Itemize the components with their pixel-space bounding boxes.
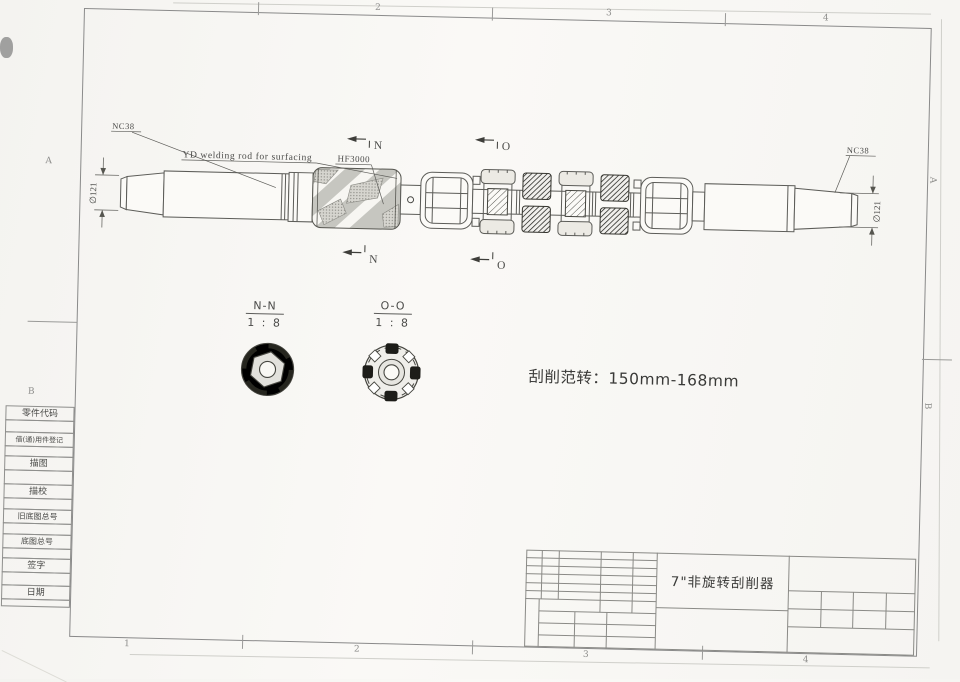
section-oo-title: O-O — [373, 299, 412, 315]
section-nn-caption: N-N 1 : 8 — [229, 299, 300, 331]
section-marker-o-bottom: O — [470, 252, 506, 272]
tool-right-section — [633, 177, 858, 238]
zone-tick — [725, 13, 726, 26]
zone-label-left: B — [28, 387, 35, 397]
drawing-sheet: 2 3 4 1 2 3 4 A B A B 零件代码 借(通)用件登记 描图 描… — [69, 8, 932, 657]
svg-text:HF3000: HF3000 — [337, 154, 370, 165]
svg-text:NC38: NC38 — [112, 121, 135, 132]
sidebar-cell: 借(通)用件登记 — [5, 431, 74, 448]
drawing-title: 7"非旋转刮削器 — [656, 570, 788, 593]
dia-label-right: ∅121 — [872, 201, 883, 223]
zone-tick — [492, 8, 493, 21]
section-marker-o-top: O — [475, 137, 511, 153]
zone-tick — [28, 321, 78, 323]
zone-tick — [472, 640, 473, 654]
svg-text:O: O — [502, 141, 511, 153]
zone-label-top: 3 — [606, 8, 612, 18]
zone-label-bottom: 1 — [124, 639, 130, 649]
zone-tick — [258, 2, 259, 15]
zone-tick — [242, 635, 243, 649]
zone-label-bottom: 4 — [803, 655, 809, 665]
title-block-grid — [524, 550, 916, 656]
dia-label-left: ∅121 — [88, 182, 99, 204]
zone-label-top: 4 — [823, 13, 829, 23]
svg-text:O: O — [497, 260, 506, 272]
svg-text:N: N — [374, 140, 383, 152]
tool-body — [120, 168, 313, 222]
zone-label-bottom: 3 — [583, 650, 589, 660]
title-block: 7"非旋转刮削器 — [524, 550, 916, 656]
section-marker-n-top: N — [347, 136, 383, 152]
paper-edge-right — [938, 19, 942, 641]
section-view-nn — [227, 328, 309, 410]
zone-label-top: 2 — [375, 3, 381, 13]
margin-title-strip: 零件代码 借(通)用件登记 描图 描校 旧底图总号 底图总号 签字 日期 — [1, 405, 75, 608]
paper-edge-bottom — [130, 654, 930, 668]
scanned-engineering-drawing: 2 3 4 1 2 3 4 A B A B 零件代码 借(通)用件登记 描图 描… — [0, 0, 960, 679]
zone-label-left: A — [45, 156, 52, 166]
tool-assembly-view: ∅121 — [81, 107, 885, 288]
svg-text:NC38: NC38 — [847, 145, 870, 156]
section-oo-caption: O-O 1 : 8 — [358, 299, 429, 331]
sidebar-cell-empty — [1, 598, 70, 608]
section-view-oo — [349, 329, 435, 415]
section-oo-scale: 1 : 8 — [358, 316, 428, 331]
zone-tick — [922, 359, 952, 361]
annotation-nc38-right: NC38 — [835, 145, 876, 194]
scan-edge-blob — [0, 37, 13, 58]
paper-edge-top — [173, 2, 931, 14]
zone-label-right: B — [922, 403, 932, 410]
zone-label-right: A — [927, 177, 937, 184]
section-marker-n-bottom: N — [342, 245, 378, 266]
svg-text:N: N — [369, 254, 378, 266]
zone-label-bottom: 2 — [354, 645, 360, 655]
scraping-range-note: 刮削范转：150mm-168mm — [528, 365, 739, 392]
paper-corner-line — [2, 650, 67, 682]
section-nn-title: N-N — [246, 299, 284, 315]
